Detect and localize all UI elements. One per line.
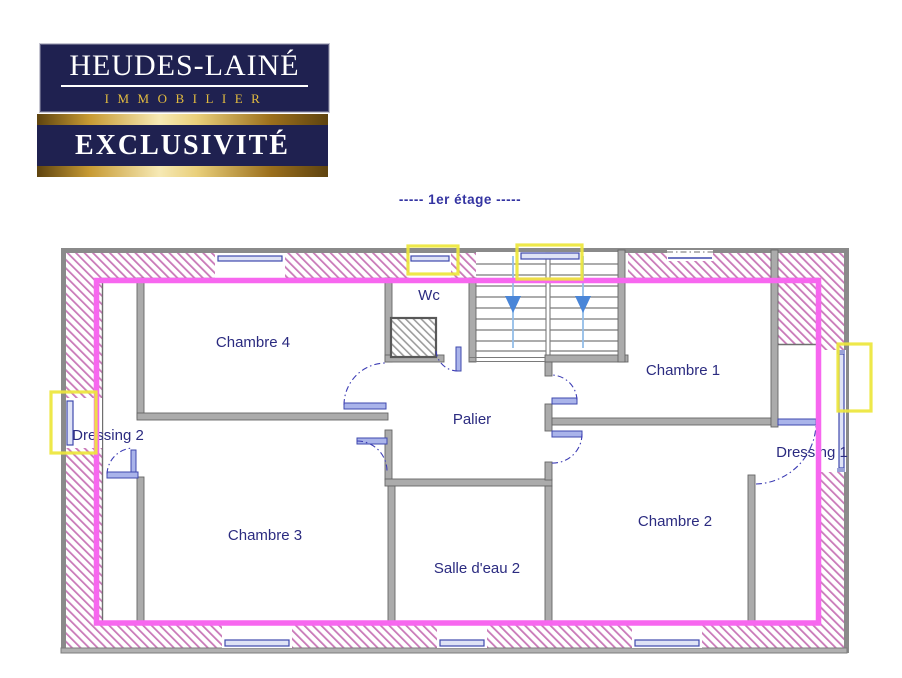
bottom-ground-line (61, 648, 847, 653)
door-leaf-chambre1 (552, 398, 577, 404)
windows (66, 250, 846, 648)
door-leaf-dressing1 (778, 419, 816, 425)
flyer-page: HEUDES-LAINÉ IMMOBILIER EXCLUSIVITÉ ----… (0, 0, 902, 678)
gold-bar-top (37, 114, 328, 125)
room-label-wc: Wc (418, 287, 440, 304)
room-labels: Chambre 4 Wc Chambre 1 Palier Dressing 2… (72, 287, 848, 577)
door-swing-chambre2 (552, 434, 582, 463)
door-leaf-wc (456, 347, 461, 371)
window-bottom-salledeau (437, 622, 487, 648)
room-label-dressing1: Dressing 1 (776, 444, 848, 461)
door-swing-chambre4 (344, 363, 386, 405)
door-leaf-chambre2 (552, 431, 582, 437)
exclusivity-banner: EXCLUSIVITÉ (37, 114, 328, 177)
window-bottom-chambre2 (632, 622, 702, 648)
door-swing-dressing2 (107, 448, 133, 474)
duct-shaft (391, 318, 436, 357)
outer-wall-outline (64, 251, 847, 651)
staircase (476, 252, 618, 356)
room-label-chambre4: Chambre 4 (216, 334, 290, 351)
room-label-salledeau2: Salle d'eau 2 (434, 560, 520, 577)
exclusivity-label: EXCLUSIVITÉ (37, 125, 328, 166)
door-swing-chambre1 (552, 375, 577, 400)
door-leaf-chambre4 (344, 403, 386, 409)
room-label-chambre1: Chambre 1 (646, 362, 720, 379)
agency-logo: HEUDES-LAINÉ IMMOBILIER (39, 43, 330, 113)
door-swing-chambre3 (357, 441, 387, 471)
floor-title: ----- 1er étage ----- (330, 192, 590, 207)
window-top-stairs (521, 253, 579, 259)
gold-bar-bottom (37, 166, 328, 177)
room-label-palier: Palier (453, 411, 491, 428)
window-top-chambre1 (667, 250, 713, 261)
agency-name: HEUDES-LAINÉ (61, 49, 307, 87)
room-label-chambre2: Chambre 2 (638, 513, 712, 530)
room-label-chambre3: Chambre 3 (228, 527, 302, 544)
door-leaf-dressing2-b (107, 472, 138, 478)
room-label-dressing2: Dressing 2 (72, 427, 144, 444)
agency-tagline: IMMOBILIER (101, 91, 269, 107)
window-bottom-chambre3 (222, 622, 292, 648)
exterior-wall-hatch (66, 253, 846, 649)
window-top-chambre4 (215, 253, 285, 278)
